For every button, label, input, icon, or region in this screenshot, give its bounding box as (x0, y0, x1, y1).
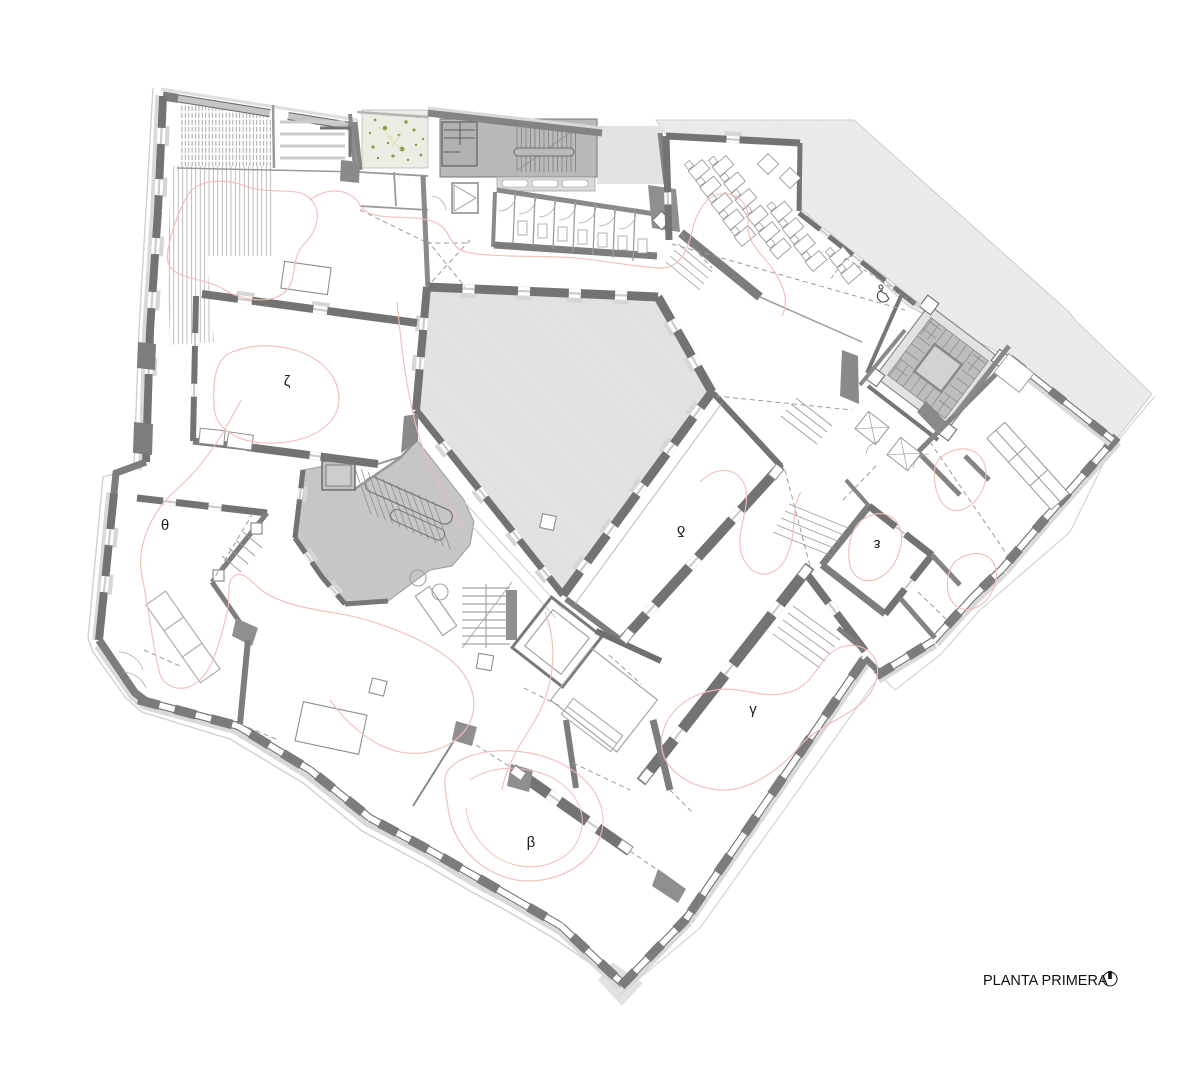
svg-text:PLANTA PRIMERA: PLANTA PRIMERA (983, 973, 1108, 989)
svg-text:δ: δ (677, 522, 685, 539)
svg-text:γ: γ (749, 701, 757, 718)
svg-text:ε: ε (873, 536, 880, 553)
svg-text:θ: θ (161, 517, 169, 534)
svg-text:ζ: ζ (284, 373, 291, 390)
svg-text:β: β (527, 834, 536, 851)
